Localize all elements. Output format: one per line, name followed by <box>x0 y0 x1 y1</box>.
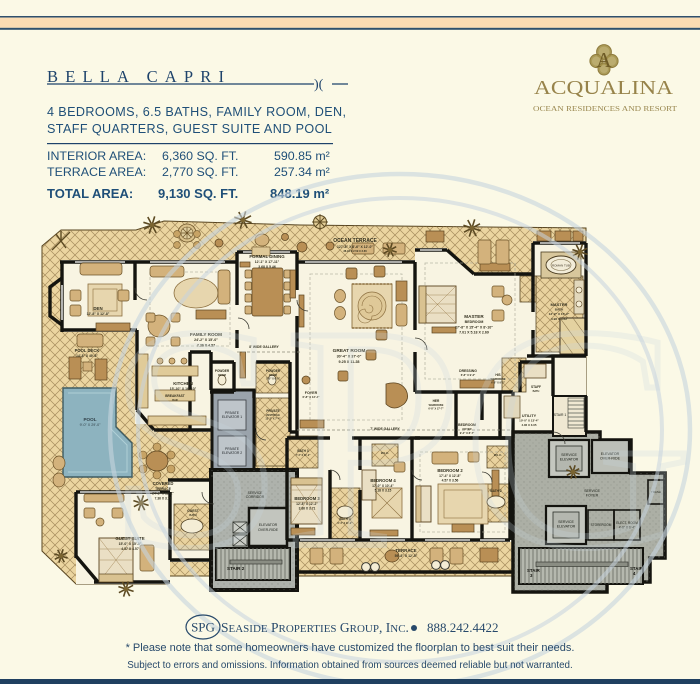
svg-text:POOL DECK14'-8" X 49'-6": POOL DECK14'-8" X 49'-6" <box>75 348 100 358</box>
svg-text:590.85 m²: 590.85 m² <box>274 149 330 163</box>
svg-text:INTERIOR AREA:: INTERIOR AREA: <box>47 149 146 163</box>
svg-text:TOTAL AREA:: TOTAL AREA: <box>47 186 133 201</box>
svg-text:9'-0" X 29'-0": 9'-0" X 29'-0" <box>80 423 101 427</box>
svg-text:2,770 SQ. FT.: 2,770 SQ. FT. <box>162 165 238 179</box>
svg-text:888.242.4422: 888.242.4422 <box>427 620 499 635</box>
svg-text:SEASIDE PROPERTIES GROUP, INC.: SEASIDE PROPERTIES GROUP, INC. <box>221 620 409 635</box>
svg-text:SPG: SPG <box>106 261 693 615</box>
svg-text:OCEAN RESIDENCES AND RESORT: OCEAN RESIDENCES AND RESORT <box>533 104 677 113</box>
svg-text:)(: )( <box>314 78 324 93</box>
svg-text:Subject to errors and omission: Subject to errors and omissions. Informa… <box>127 660 572 671</box>
svg-text:9,130 SQ. FT.: 9,130 SQ. FT. <box>158 186 238 201</box>
svg-text:TERRACE AREA:: TERRACE AREA: <box>47 165 146 179</box>
svg-text:BELLA CAPRI: BELLA CAPRI <box>47 67 231 86</box>
svg-text:ACQUALINA: ACQUALINA <box>534 77 674 99</box>
svg-text:4 BEDROOMS, 6.5 BATHS, FAMILY: 4 BEDROOMS, 6.5 BATHS, FAMILY ROOM, DEN, <box>47 105 346 119</box>
svg-text:STAFF QUARTERS, GUEST SUITE AN: STAFF QUARTERS, GUEST SUITE AND POOL <box>47 122 332 136</box>
svg-text:* Please note that some homeow: * Please note that some homeowners have … <box>126 642 575 654</box>
svg-text:OCEAN TERRACE: OCEAN TERRACE <box>333 238 377 244</box>
svg-text:6,360 SQ. FT.: 6,360 SQ. FT. <box>162 149 238 163</box>
svg-text:SPG: SPG <box>191 620 215 635</box>
svg-text:POOL: POOL <box>83 417 96 422</box>
svg-text:257.34 m²: 257.34 m² <box>274 165 330 179</box>
svg-text:A: A <box>596 48 612 72</box>
